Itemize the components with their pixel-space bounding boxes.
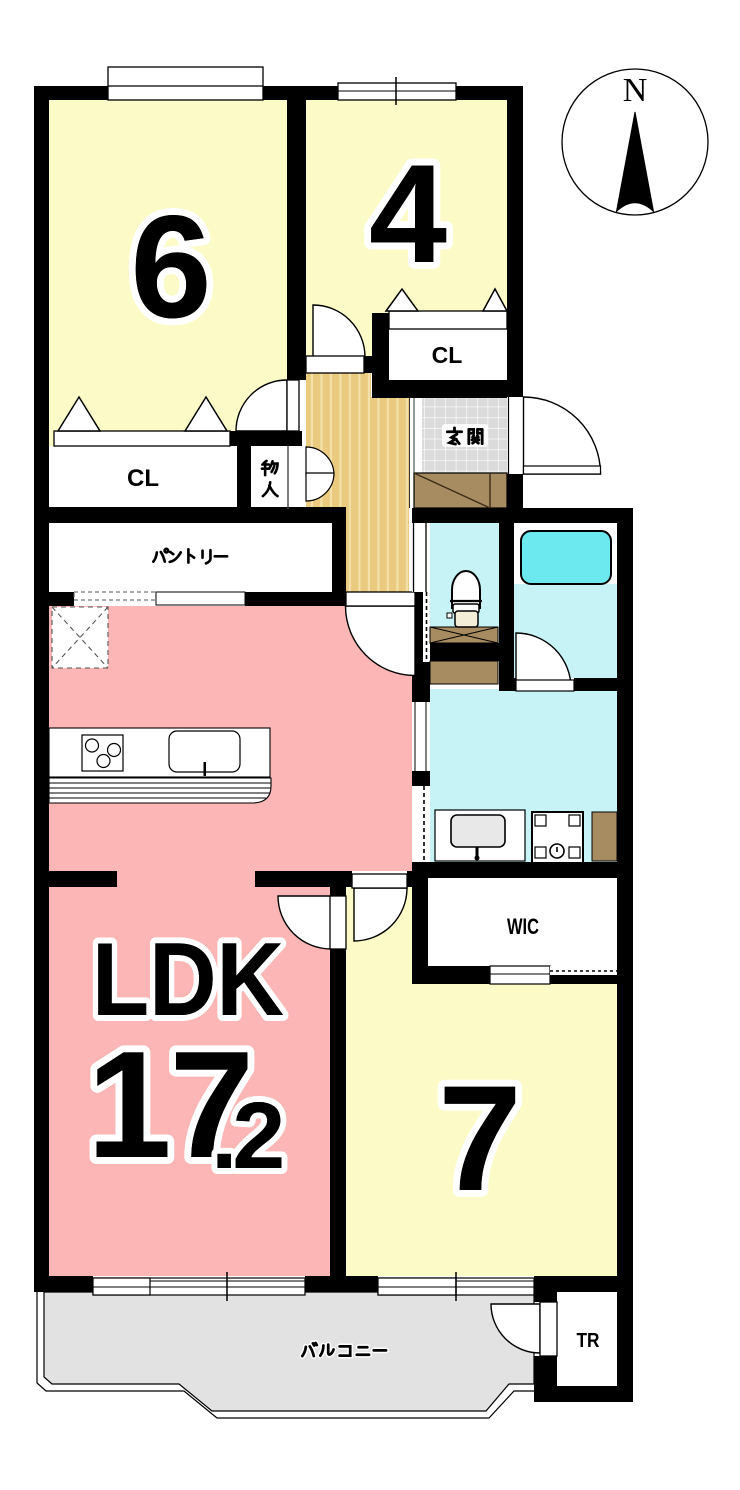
svg-text:6: 6 <box>130 185 211 348</box>
svg-text:CL: CL <box>432 342 463 368</box>
svg-text:.2: .2 <box>211 1083 282 1189</box>
svg-text:WIC: WIC <box>507 914 539 939</box>
svg-text:4: 4 <box>369 135 447 292</box>
svg-text:N: N <box>623 72 648 109</box>
svg-text:TR: TR <box>577 1330 600 1352</box>
svg-text:7: 7 <box>438 1054 521 1222</box>
svg-text:CL: CL <box>127 465 159 492</box>
